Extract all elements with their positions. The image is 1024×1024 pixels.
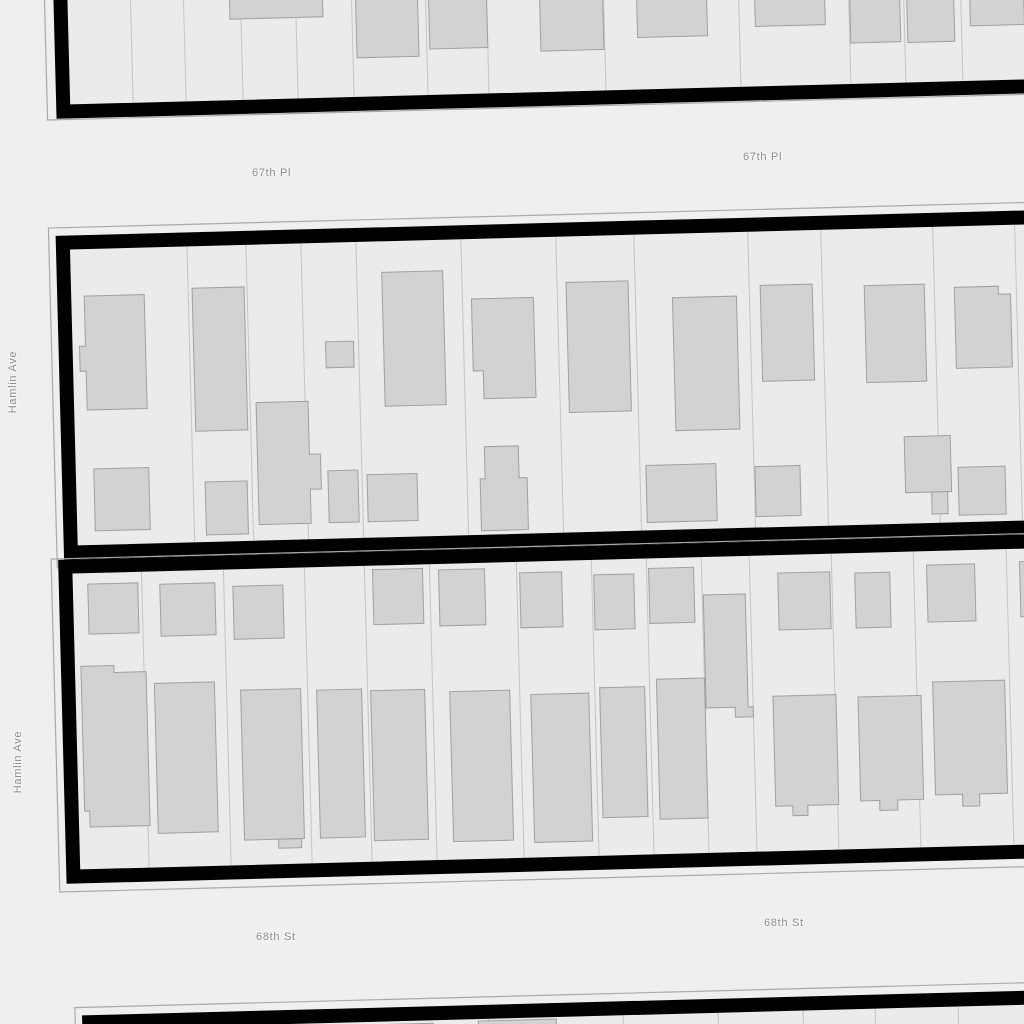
street-label-67th-pl: 67th Pl xyxy=(743,151,782,163)
building-footprint xyxy=(317,689,366,838)
building-footprint xyxy=(933,680,1008,807)
building-footprint xyxy=(958,466,1006,515)
building-footprint xyxy=(538,0,604,51)
building-footprint xyxy=(954,286,1012,368)
building-footprint xyxy=(382,271,446,407)
street-label-67th-pl: 67th Pl xyxy=(252,167,291,179)
building-footprint xyxy=(778,572,831,630)
building-footprint xyxy=(241,689,305,841)
building-footprint xyxy=(325,341,354,368)
building-footprint xyxy=(192,287,248,431)
building-footprint xyxy=(566,281,631,413)
street-label-hamlin-ave: Hamlin Ave xyxy=(12,731,24,793)
building-footprint xyxy=(354,0,419,58)
building-footprint xyxy=(531,693,593,842)
building-footprint xyxy=(848,0,901,43)
building-footprint xyxy=(81,665,150,828)
building-footprint xyxy=(932,492,949,514)
building-footprint xyxy=(927,564,976,622)
building-footprint xyxy=(703,594,753,718)
building-footprint xyxy=(233,585,284,639)
building-footprint xyxy=(278,839,301,849)
building-footprint xyxy=(649,567,695,623)
building-footprint xyxy=(520,572,563,628)
building-footprint xyxy=(858,695,924,811)
building-footprint xyxy=(773,695,839,817)
building-footprint xyxy=(371,689,429,840)
building-footprint xyxy=(450,690,514,842)
parcel-map-canvas[interactable] xyxy=(0,0,1024,1024)
map-viewport: 67th Pl67th PlHamlin AveHamlin Ave68th S… xyxy=(0,0,1024,1024)
building-footprint xyxy=(656,678,708,819)
building-footprint xyxy=(646,464,717,523)
block-between-alley-and-68th-st xyxy=(51,531,1024,892)
building-footprint xyxy=(154,682,218,834)
building-footprint xyxy=(78,295,147,411)
building-footprint xyxy=(94,467,151,530)
building-footprint xyxy=(635,0,707,38)
building-footprint xyxy=(904,436,951,493)
building-footprint xyxy=(600,687,648,818)
street-label-hamlin-ave: Hamlin Ave xyxy=(7,351,19,413)
building-footprint xyxy=(427,0,487,49)
building-footprint xyxy=(864,284,927,383)
block-between-67th-pl-and-alley xyxy=(48,200,1024,568)
building-footprint xyxy=(229,0,323,19)
building-footprint xyxy=(88,583,139,634)
building-footprint xyxy=(760,284,814,381)
building-footprint xyxy=(968,0,1024,26)
building-footprint xyxy=(672,296,739,431)
building-footprint xyxy=(594,574,635,630)
building-footprint xyxy=(753,0,825,26)
building-footprint xyxy=(160,583,216,636)
street-label-68th-st: 68th St xyxy=(256,931,296,943)
building-footprint xyxy=(438,569,485,626)
building-footprint xyxy=(372,568,423,624)
building-footprint xyxy=(905,0,955,42)
building-footprint xyxy=(367,473,418,521)
building-footprint xyxy=(855,572,891,628)
street-label-68th-st: 68th St xyxy=(764,917,804,929)
building-footprint xyxy=(205,481,248,535)
building-footprint xyxy=(755,465,801,516)
building-footprint xyxy=(328,470,359,523)
